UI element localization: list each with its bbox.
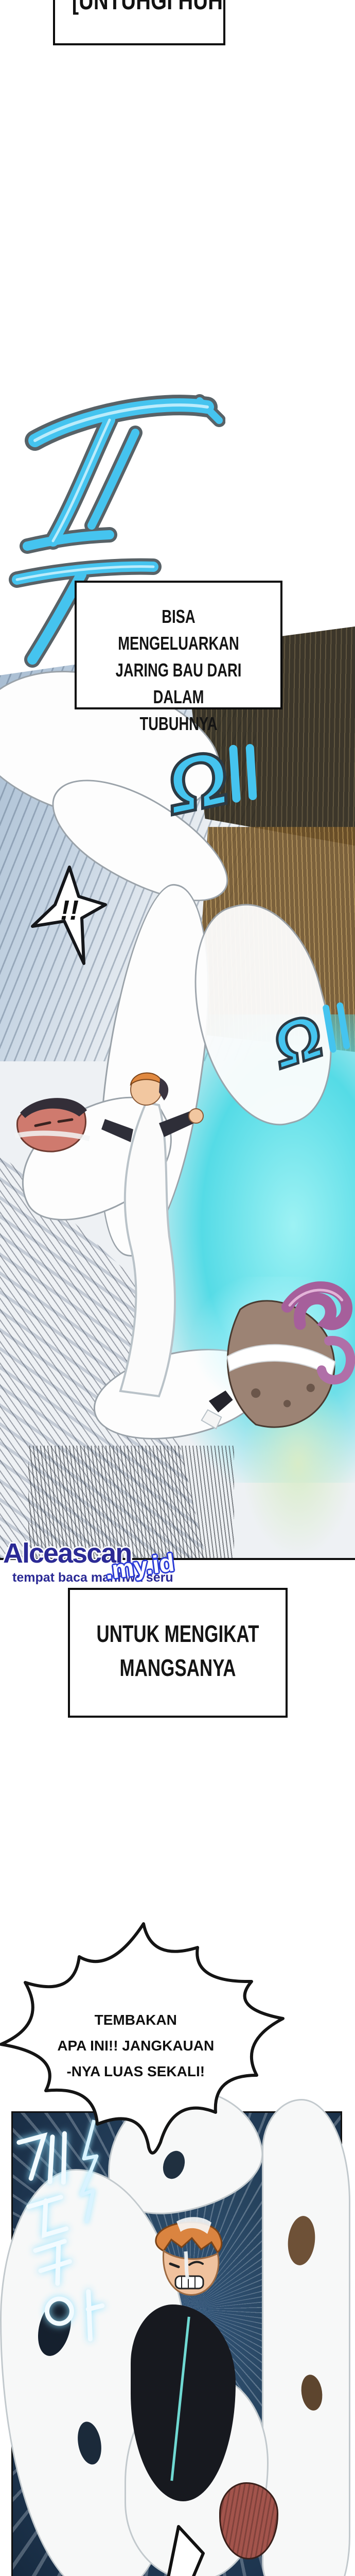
webtoon-page: [UNTUHGI HUHA] <box>0 0 355 2576</box>
speech-bubble-tail <box>131 2523 229 2576</box>
svg-text:Ω: Ω <box>157 734 236 831</box>
hero-gritting-face <box>140 2211 233 2319</box>
sfx-omega-glyph: Ω <box>154 724 276 846</box>
panel-webbed-hero <box>11 2111 342 2576</box>
speech-bubble-tembakan: TEMBAKAN APA INI!! JANGKAUAN -NYA LUAS S… <box>0 1921 286 2162</box>
exclamation-burst: !! <box>28 865 111 968</box>
panel-web-attack: Ω Ω !! <box>0 621 355 1560</box>
caption-1-text: BISA MENGELUARKAN JARING BAU DARI DALAM … <box>101 603 256 737</box>
caption-top-text: [UNTUHGI HUHA] <box>72 0 207 15</box>
caption-box-top: [UNTUHGI HUHA] <box>53 0 225 45</box>
caption-box-1: BISA MENGELUARKAN JARING BAU DARI DALAM … <box>75 581 282 709</box>
bubble-tembakan-text: TEMBAKAN APA INI!! JANGKAUAN -NYA LUAS S… <box>8 2007 263 2084</box>
horned-monster <box>177 1277 355 1436</box>
caption-2-text: UNTUK MENGIKAT MANGSANYA <box>96 1617 259 1685</box>
sfx-exclaim-text: !! <box>28 894 111 926</box>
caption-box-2: UNTUK MENGIKAT MANGSANYA <box>68 1588 288 1718</box>
